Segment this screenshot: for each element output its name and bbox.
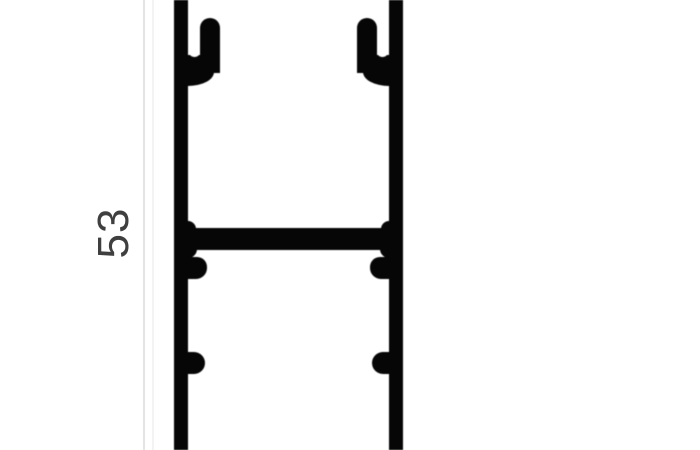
left-hook-finger: [200, 18, 220, 73]
profile-left-wall: [174, 0, 188, 450]
profile-crossbar: [182, 228, 398, 250]
right-hook-fillet: [363, 72, 389, 86]
lower-right-nub: [372, 352, 389, 374]
left-hook-notch: [189, 0, 200, 57]
upper-left-nub: [188, 257, 207, 279]
crossbar-top-left-fillet: [188, 221, 196, 229]
upper-right-nub: [370, 257, 389, 279]
lower-left-nub: [188, 352, 205, 374]
right-hook-notch: [377, 0, 388, 57]
left-hook-fillet: [188, 72, 214, 86]
profile-cross-section-drawing: 53: [0, 0, 700, 450]
profile-right-wall: [389, 0, 403, 450]
crossbar-top-right-fillet: [381, 221, 389, 229]
profile-geometry: [0, 0, 700, 450]
right-hook-finger: [357, 18, 377, 73]
